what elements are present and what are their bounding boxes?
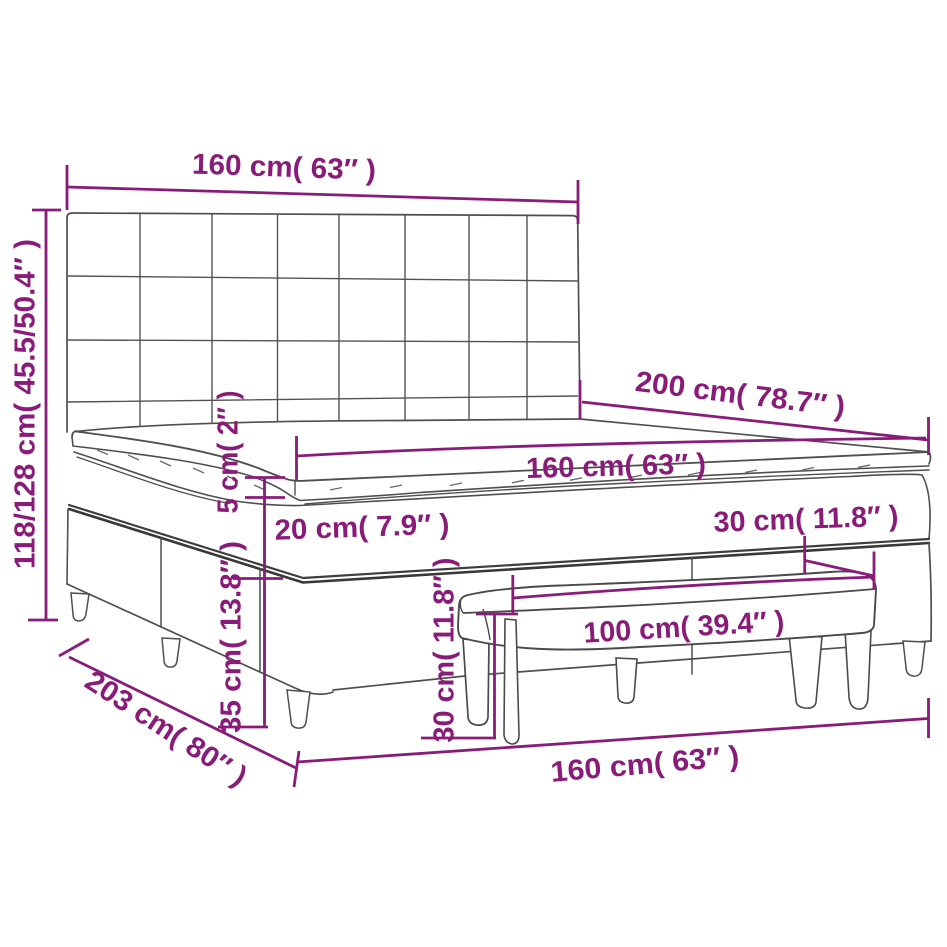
svg-text:118/128 cm( 45.5/50.4″ ): 118/128 cm( 45.5/50.4″ ) — [10, 239, 42, 569]
svg-text:30 cm( 11.8″ ): 30 cm( 11.8″ ) — [429, 558, 461, 743]
svg-text:160 cm( 63″ ): 160 cm( 63″ ) — [192, 148, 377, 186]
svg-text:30 cm( 11.8″ ): 30 cm( 11.8″ ) — [713, 500, 899, 538]
svg-text:35 cm( 13.8″ ): 35 cm( 13.8″ ) — [216, 541, 248, 733]
svg-text:20 cm( 7.9″ ): 20 cm( 7.9″ ) — [274, 509, 450, 547]
svg-text:5 cm( 2″ ): 5 cm( 2″ ) — [213, 391, 245, 514]
svg-text:160 cm( 63″ ): 160 cm( 63″ ) — [526, 448, 707, 485]
